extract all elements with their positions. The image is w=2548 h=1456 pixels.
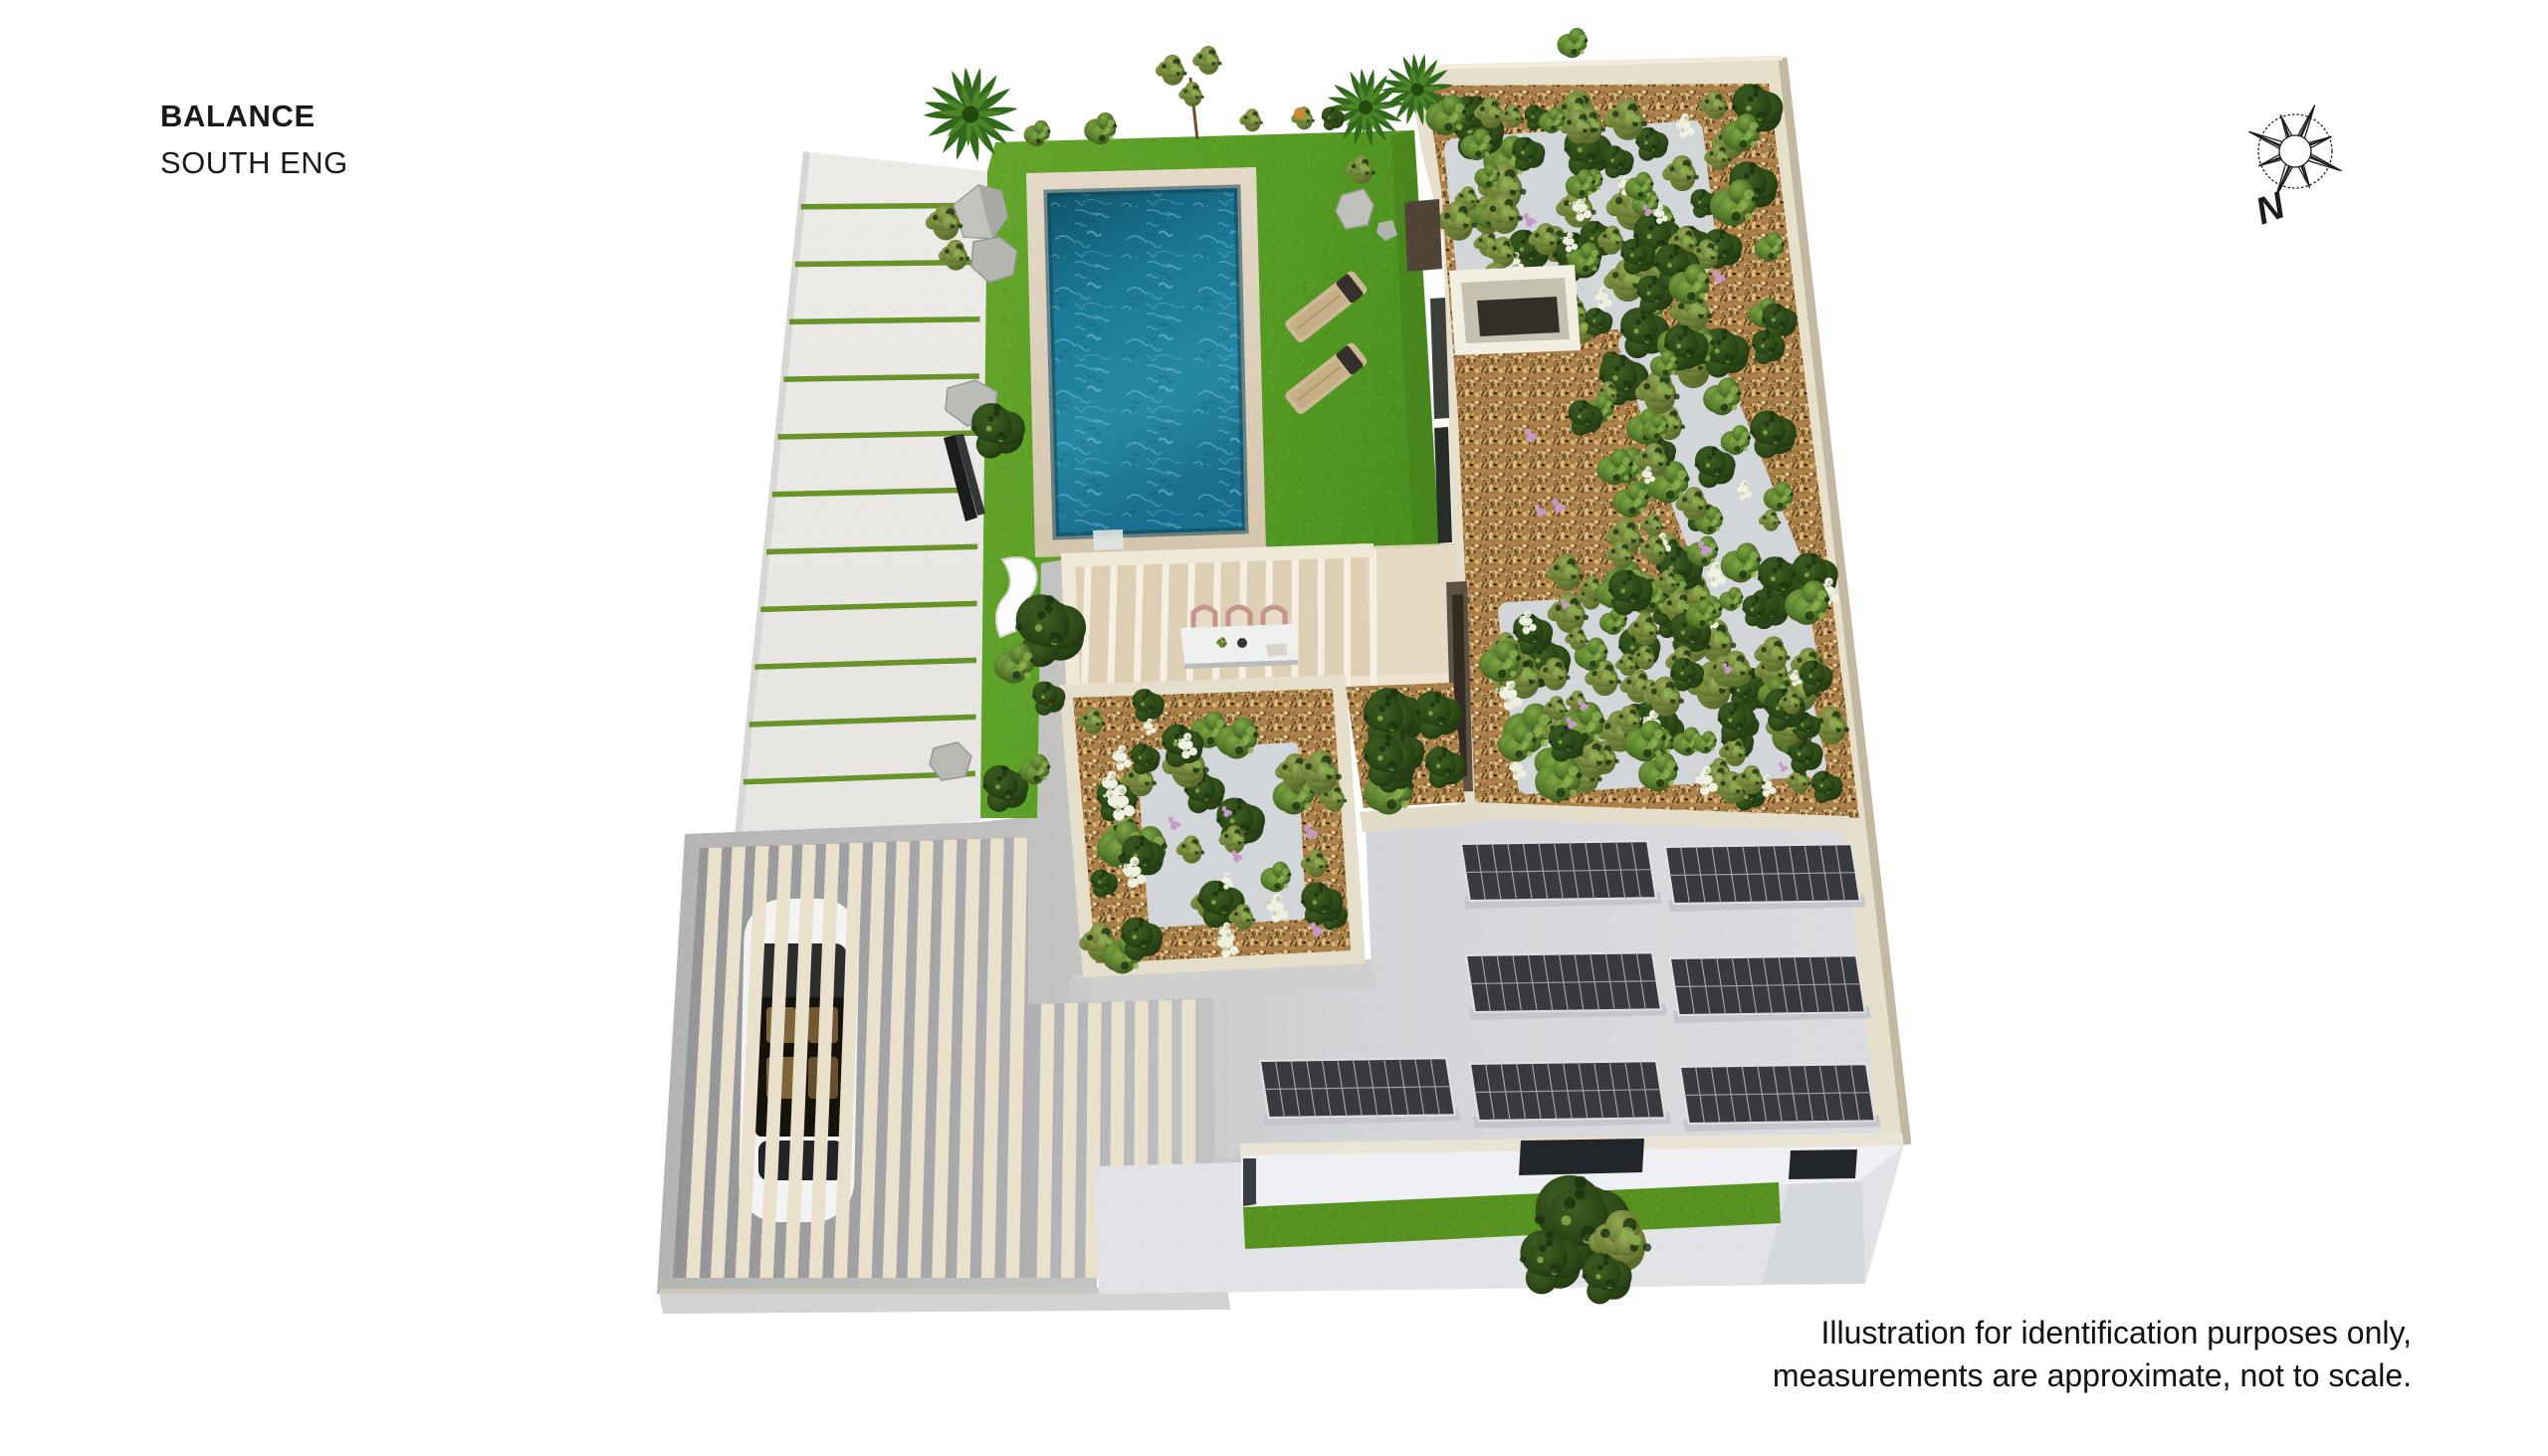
svg-text:measurements are approximate,: measurements are approximate, not to sca… xyxy=(1773,1357,2412,1393)
svg-text:N: N xyxy=(2250,184,2292,233)
svg-text:Illustration for identificatio: Illustration for identification purposes… xyxy=(1821,1315,2413,1351)
svg-text:BALANCE: BALANCE xyxy=(160,99,316,133)
svg-text:SOUTH ENG: SOUTH ENG xyxy=(160,145,348,180)
